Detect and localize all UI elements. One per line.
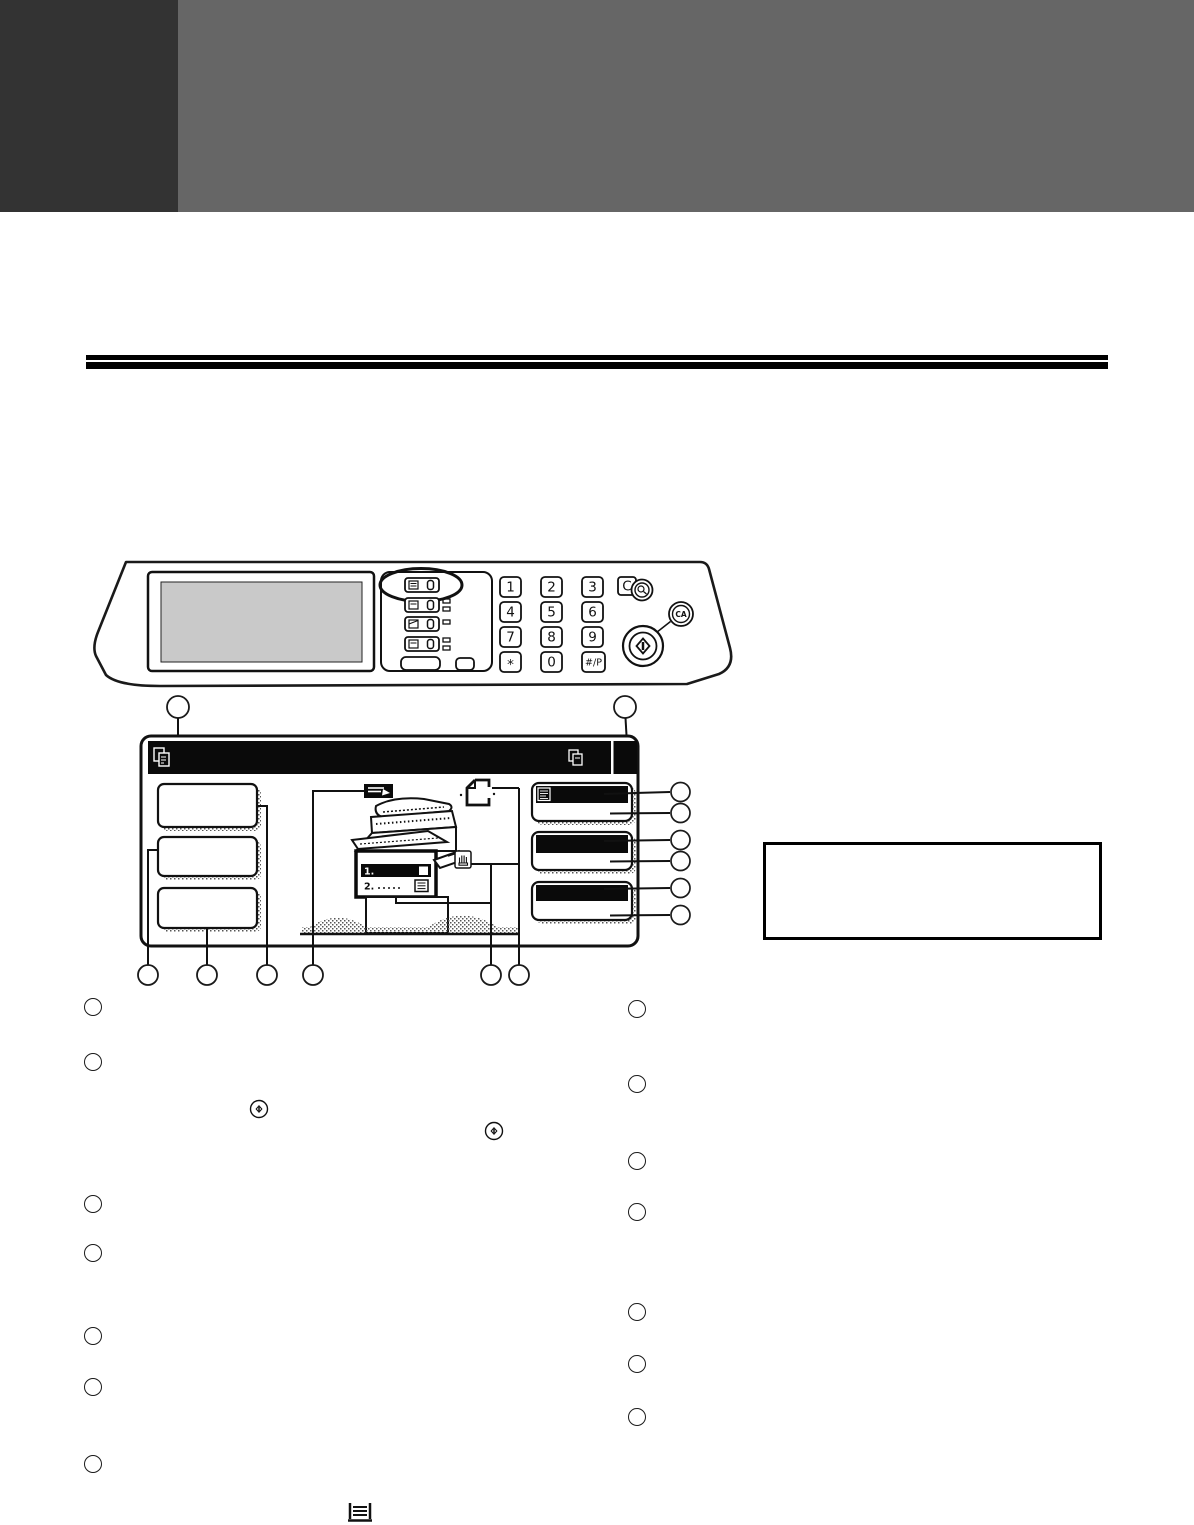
callout-circle bbox=[509, 965, 529, 985]
key-2-label: 2 bbox=[547, 580, 556, 596]
manual-page: 1 2 3 4 5 6 7 8 9 * 0 #/P C bbox=[0, 0, 1194, 1525]
key-1-label: 1 bbox=[506, 580, 515, 596]
list-callout-circle bbox=[84, 998, 102, 1016]
key-star-label: * bbox=[507, 657, 514, 673]
list-callout-circle bbox=[628, 1152, 646, 1170]
list-callout-circle bbox=[84, 1195, 102, 1213]
original-feed-icon bbox=[364, 784, 393, 798]
list-callout-circle bbox=[628, 1203, 646, 1221]
right-touch-buttons bbox=[532, 783, 636, 924]
touch-screen-diagram: 1. 2. bbox=[80, 728, 740, 990]
list-callout-circle bbox=[84, 1244, 102, 1262]
list-callout-circle bbox=[628, 1303, 646, 1321]
clear-all-key: CA bbox=[669, 602, 693, 626]
callout-circle bbox=[614, 696, 636, 718]
inline-start-key-icon bbox=[248, 1098, 270, 1120]
key-5-label: 5 bbox=[547, 605, 556, 621]
touch-button bbox=[158, 888, 257, 928]
section-rule-top bbox=[86, 355, 1108, 360]
callout-circle bbox=[197, 965, 217, 985]
callout-circle bbox=[138, 965, 158, 985]
section-rule-bottom bbox=[86, 362, 1108, 369]
custom-settings-key bbox=[456, 658, 474, 670]
callout-circle bbox=[671, 783, 690, 802]
note-box bbox=[763, 842, 1102, 940]
list-callout-circle bbox=[628, 1075, 646, 1093]
key-3-label: 3 bbox=[588, 580, 597, 596]
list-callout-circle bbox=[84, 1053, 102, 1071]
key-8-label: 8 bbox=[547, 630, 556, 646]
list-callout-circle bbox=[628, 1408, 646, 1426]
job-status-key bbox=[401, 657, 440, 670]
control-panel-illustration: 1 2 3 4 5 6 7 8 9 * 0 #/P C bbox=[80, 550, 760, 750]
callout-circle bbox=[257, 965, 277, 985]
key-hash-p-label: #/P bbox=[585, 658, 602, 669]
touch-button-selected-half bbox=[536, 885, 628, 901]
touch-button bbox=[158, 837, 257, 876]
tray-2-list-icon bbox=[415, 880, 428, 892]
callout-circle bbox=[671, 852, 690, 871]
list-callout-circle bbox=[84, 1378, 102, 1396]
list-callout-circle bbox=[84, 1327, 102, 1345]
left-touch-buttons bbox=[158, 784, 261, 932]
scan-mode-key bbox=[405, 617, 439, 631]
inline-start-key-icon bbox=[483, 1120, 505, 1142]
tray-1-paper-icon bbox=[419, 867, 428, 876]
clear-key-label: C bbox=[622, 579, 631, 595]
callout-circle bbox=[671, 804, 690, 823]
paper-tray-box: 1. 2. bbox=[356, 851, 436, 897]
touch-button-selected-half bbox=[536, 835, 628, 853]
message-display-bar bbox=[148, 741, 637, 774]
bottom-callouts bbox=[138, 965, 529, 985]
clear-all-key-label: CA bbox=[675, 610, 687, 619]
callout-circle bbox=[671, 879, 690, 898]
paper-select-icon bbox=[538, 788, 550, 801]
touch-button bbox=[158, 784, 257, 827]
key-6-label: 6 bbox=[588, 605, 597, 621]
start-key bbox=[623, 626, 663, 666]
key-4-label: 4 bbox=[506, 605, 515, 621]
logout-key bbox=[632, 580, 653, 601]
list-callout-circle bbox=[84, 1455, 102, 1473]
list-callout-circle bbox=[628, 1000, 646, 1018]
copy-mode-key bbox=[405, 578, 439, 592]
list-callout-circle bbox=[628, 1355, 646, 1373]
right-callouts bbox=[671, 783, 690, 925]
tray-2-label: 2. bbox=[364, 882, 374, 893]
key-9-label: 9 bbox=[588, 630, 597, 646]
page-corner-block bbox=[0, 0, 178, 212]
callout-circle bbox=[671, 831, 690, 850]
fax-mode-key bbox=[405, 637, 439, 651]
ground-band bbox=[302, 927, 518, 933]
key-0-label: 0 bbox=[547, 655, 556, 671]
print-mode-key bbox=[405, 598, 439, 612]
callout-circle bbox=[167, 696, 189, 718]
display-divider bbox=[611, 741, 614, 774]
mode-select-keys bbox=[380, 569, 492, 672]
callout-circle bbox=[671, 906, 690, 925]
chapter-banner bbox=[178, 0, 1194, 212]
touch-screen bbox=[161, 582, 362, 662]
key-7-label: 7 bbox=[506, 630, 515, 646]
inline-tray-icon bbox=[344, 1500, 376, 1524]
callout-circle bbox=[303, 965, 323, 985]
hand-feed-icon bbox=[455, 851, 471, 868]
tray-1-label: 1. bbox=[364, 867, 374, 878]
callout-circle bbox=[481, 965, 501, 985]
